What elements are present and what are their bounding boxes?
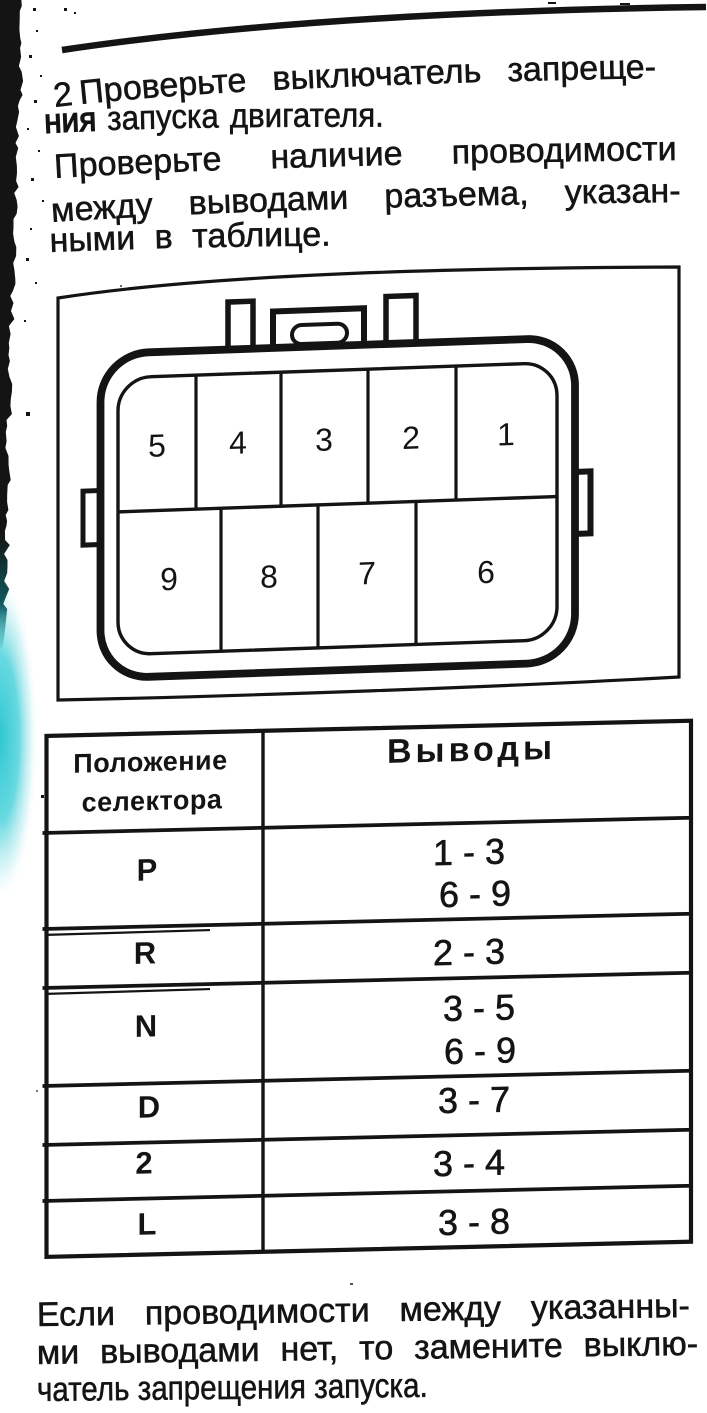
svg-text:P: P (137, 852, 158, 887)
svg-text:селектора: селектора (82, 784, 223, 817)
svg-text:9: 9 (160, 561, 178, 598)
svg-text:6: 6 (477, 554, 495, 591)
svg-text:ния запуска двигателя.: ния запуска двигателя. (43, 95, 384, 140)
svg-text:R: R (134, 935, 156, 971)
svg-text:N: N (135, 1008, 157, 1044)
svg-text:6 - 9: 6 - 9 (444, 1029, 516, 1072)
svg-text:чатель запрещения запуска.: чатель запрещения запуска. (37, 1366, 428, 1409)
svg-text:8: 8 (260, 558, 278, 595)
svg-text:7: 7 (358, 555, 376, 592)
svg-text:6 - 9: 6 - 9 (439, 872, 511, 915)
svg-text:1: 1 (497, 416, 515, 453)
svg-text:Выводы: Выводы (387, 729, 556, 771)
svg-text:5: 5 (148, 427, 166, 464)
svg-text:D: D (138, 1089, 160, 1125)
svg-text:2: 2 (135, 1145, 152, 1180)
svg-text:2: 2 (402, 419, 420, 456)
svg-text:1 - 3: 1 - 3 (433, 831, 505, 874)
svg-text:4: 4 (229, 424, 247, 461)
svg-text:3 - 5: 3 - 5 (443, 986, 515, 1029)
svg-text:2 - 3: 2 - 3 (433, 931, 505, 974)
svg-text:Положение: Положение (73, 745, 227, 779)
svg-text:L: L (138, 1206, 157, 1241)
svg-text:3 - 4: 3 - 4 (433, 1142, 505, 1185)
svg-text:3 - 7: 3 - 7 (438, 1078, 510, 1121)
svg-text:3 - 8: 3 - 8 (438, 1200, 510, 1243)
svg-text:3: 3 (315, 421, 333, 458)
svg-text:ными в таблице.: ными в таблице. (49, 215, 331, 259)
